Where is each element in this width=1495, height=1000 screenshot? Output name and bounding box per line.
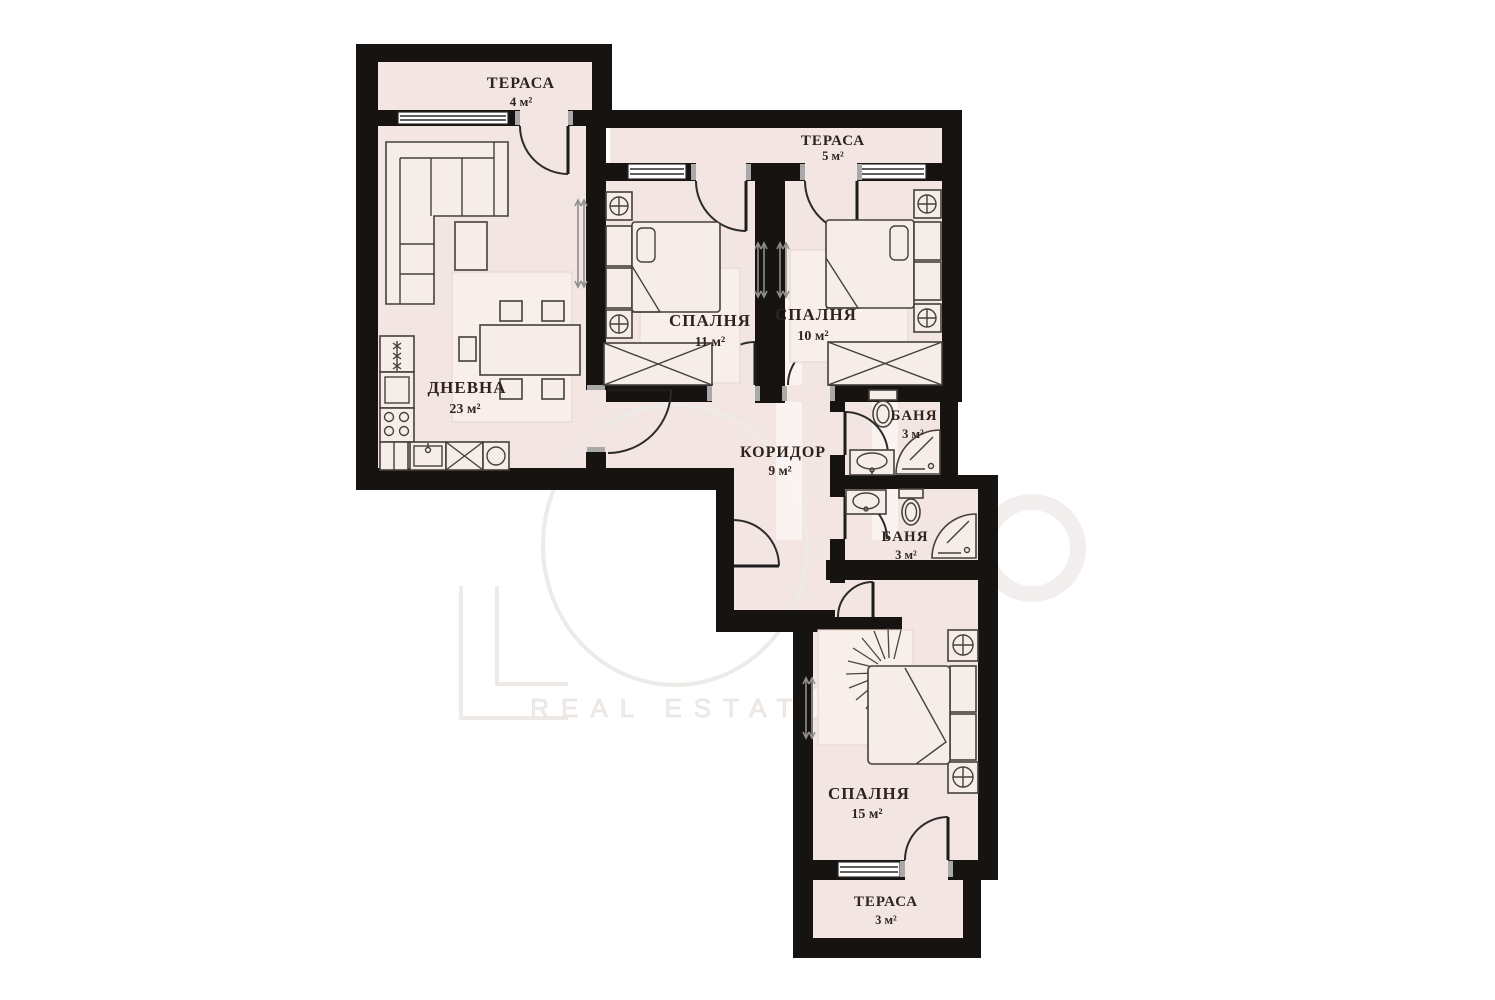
stove-icon: [380, 408, 414, 442]
room-label-terrace-top-left: ТЕРАСА: [487, 75, 555, 92]
window-icon: [628, 164, 686, 179]
room-label-terrace-bottom: ТЕРАСА: [854, 894, 918, 910]
wardrobe-icon: [828, 342, 942, 385]
nightstand-icon: [606, 310, 632, 338]
room-label-living-room: ДНЕВНА: [427, 378, 506, 397]
chair-icon: [459, 337, 476, 361]
nightstand-icon: [948, 630, 978, 661]
headboard-panel: [950, 714, 976, 760]
chair-icon: [542, 301, 564, 321]
room-area-bathroom-lower: 3 м²: [895, 548, 917, 562]
nightstand-icon: [914, 190, 941, 218]
room-area-terrace-bottom: 3 м²: [875, 913, 897, 927]
nightstand-icon: [948, 762, 978, 793]
room-label-corridor: КОРИДОР: [740, 444, 826, 461]
floor-terrace-top: [610, 128, 942, 163]
watermark-brand-text: REAL ESTATE: [530, 693, 833, 723]
room-label-terrace-top: ТЕРАСА: [801, 133, 865, 149]
room-label-bedroom-15: СПАЛНЯ: [828, 784, 910, 803]
room-label-bathroom-lower: БАНЯ: [881, 529, 928, 545]
room-area-corridor: 9 м²: [768, 463, 791, 478]
headboard-panel: [950, 666, 976, 712]
floor-plan-canvas: REAL ESTATE: [0, 0, 1495, 1000]
room-area-terrace-top: 5 м²: [822, 149, 844, 163]
watermark-ring: [986, 502, 1078, 594]
headboard-panel: [914, 222, 941, 260]
headboard-panel: [606, 268, 632, 308]
room-area-bathroom-upper: 3 м²: [902, 427, 924, 441]
washbasin-icon: [850, 450, 894, 475]
room-label-bedroom-11: СПАЛНЯ: [669, 311, 751, 330]
double-bed-icon: [868, 666, 950, 764]
room-area-living-room: 23 м²: [449, 402, 480, 417]
headboard-panel: [914, 262, 941, 300]
room-area-bedroom-11: 11 м²: [695, 335, 725, 350]
chair-icon: [500, 301, 522, 321]
washbasin-icon: [846, 490, 886, 514]
floor-plan-drawing: REAL ESTATE: [0, 0, 1495, 1000]
double-bed-icon: [826, 220, 914, 308]
dining-table-icon: [480, 325, 580, 375]
watermark-letter-l-inner: [497, 586, 568, 684]
window-icon: [838, 862, 900, 877]
chair-icon: [542, 379, 564, 399]
double-bed-icon: [632, 222, 720, 312]
room-area-terrace-top-left: 4 м²: [510, 94, 533, 109]
room-area-bedroom-15: 15 м²: [851, 807, 882, 822]
headboard-panel: [606, 226, 632, 266]
window-icon: [860, 164, 926, 179]
room-area-bedroom-10: 10 м²: [797, 329, 828, 344]
coffee-table-icon: [455, 222, 487, 270]
nightstand-icon: [606, 192, 632, 220]
room-label-bedroom-10: СПАЛНЯ: [775, 305, 857, 324]
room-label-bathroom-upper: БАНЯ: [890, 408, 937, 424]
nightstand-icon: [914, 304, 941, 332]
window-icon: [398, 112, 508, 124]
